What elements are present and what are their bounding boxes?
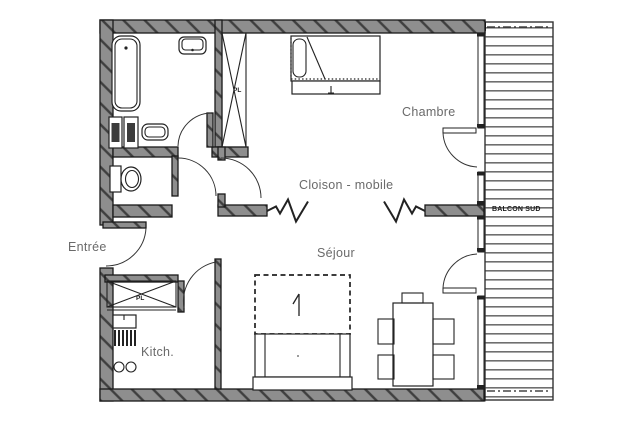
chair xyxy=(433,355,454,379)
label-kitchen: Kitch. xyxy=(141,345,174,359)
bed xyxy=(291,36,380,81)
window-segment xyxy=(478,33,484,128)
chambre-door-swing xyxy=(221,158,261,198)
label-sejour: Séjour xyxy=(317,246,355,260)
bathroom-door-swing xyxy=(178,113,211,146)
label-entree: Entrée xyxy=(68,240,107,254)
chair xyxy=(378,319,394,344)
hall-door-leaf xyxy=(178,281,184,312)
entry-door-swing xyxy=(106,228,146,266)
window-segment xyxy=(478,296,484,389)
wall-bottom xyxy=(100,389,484,401)
closet-label: PL xyxy=(136,295,144,302)
bathtub-drain xyxy=(124,46,127,49)
partition-stub-right xyxy=(425,205,484,216)
wall-top xyxy=(100,20,485,33)
chambre-balcony-door-swing xyxy=(443,133,477,167)
washer-door xyxy=(112,123,120,142)
chambre-furniture xyxy=(291,36,380,94)
bed-frame xyxy=(292,81,380,94)
wall-kitchen-divider xyxy=(215,259,221,389)
dryer-door xyxy=(127,123,135,142)
partition-zigzag-left xyxy=(267,200,308,222)
floor-plan-drawing: PL PL xyxy=(0,0,640,427)
chambre-balcony-door-leaf xyxy=(443,128,476,133)
sofa xyxy=(255,334,350,377)
bathroom-door-leaf xyxy=(207,113,213,147)
toilet-tank xyxy=(110,166,121,192)
wc xyxy=(110,166,141,192)
bidet xyxy=(142,124,168,140)
chair xyxy=(433,319,454,344)
washbasin-drain xyxy=(191,49,194,52)
window-segment xyxy=(478,172,484,205)
label-chambre: Chambre xyxy=(402,105,456,119)
dining-table xyxy=(393,303,433,386)
chambre-door-leaf xyxy=(218,194,225,207)
closet-label: PL xyxy=(233,87,241,94)
sofa-dot xyxy=(297,355,299,357)
sejour-furniture xyxy=(253,275,454,390)
closet-bathroom-pl: PL xyxy=(222,33,246,147)
wall-bathroom-closet xyxy=(215,20,222,147)
sofa-bed-unfolded-outline xyxy=(255,275,350,334)
label-cloison-mobile: Cloison - mobile xyxy=(299,178,393,192)
chair xyxy=(378,355,394,379)
closet-entry-pl: PL xyxy=(107,281,176,310)
sofa-bed-arrow xyxy=(293,294,299,316)
bathroom xyxy=(109,36,206,148)
label-balcon-sud: BALCON SUD xyxy=(492,206,541,213)
mobile-partition xyxy=(267,200,425,222)
kitchen-radiator xyxy=(115,330,135,346)
sejour-balcony-door-swing xyxy=(443,254,477,288)
entry-door-leaf xyxy=(103,222,146,228)
partition-zigzag-right xyxy=(384,200,425,222)
window-segment xyxy=(478,216,484,252)
chair xyxy=(402,293,423,303)
hall-door-swing xyxy=(183,262,216,308)
wc-door-leaf xyxy=(172,156,178,196)
sink-basin xyxy=(114,362,124,372)
kitchen xyxy=(113,315,136,372)
sejour-balcony-door-leaf xyxy=(443,288,476,293)
wall-wc-bottom xyxy=(113,205,172,217)
sink-basin xyxy=(126,362,136,372)
wall-bathroom-bottom xyxy=(113,147,178,157)
floor-plan: PL PL xyxy=(0,0,640,427)
wc-door-swing xyxy=(178,158,216,196)
sofa-base xyxy=(253,377,352,390)
